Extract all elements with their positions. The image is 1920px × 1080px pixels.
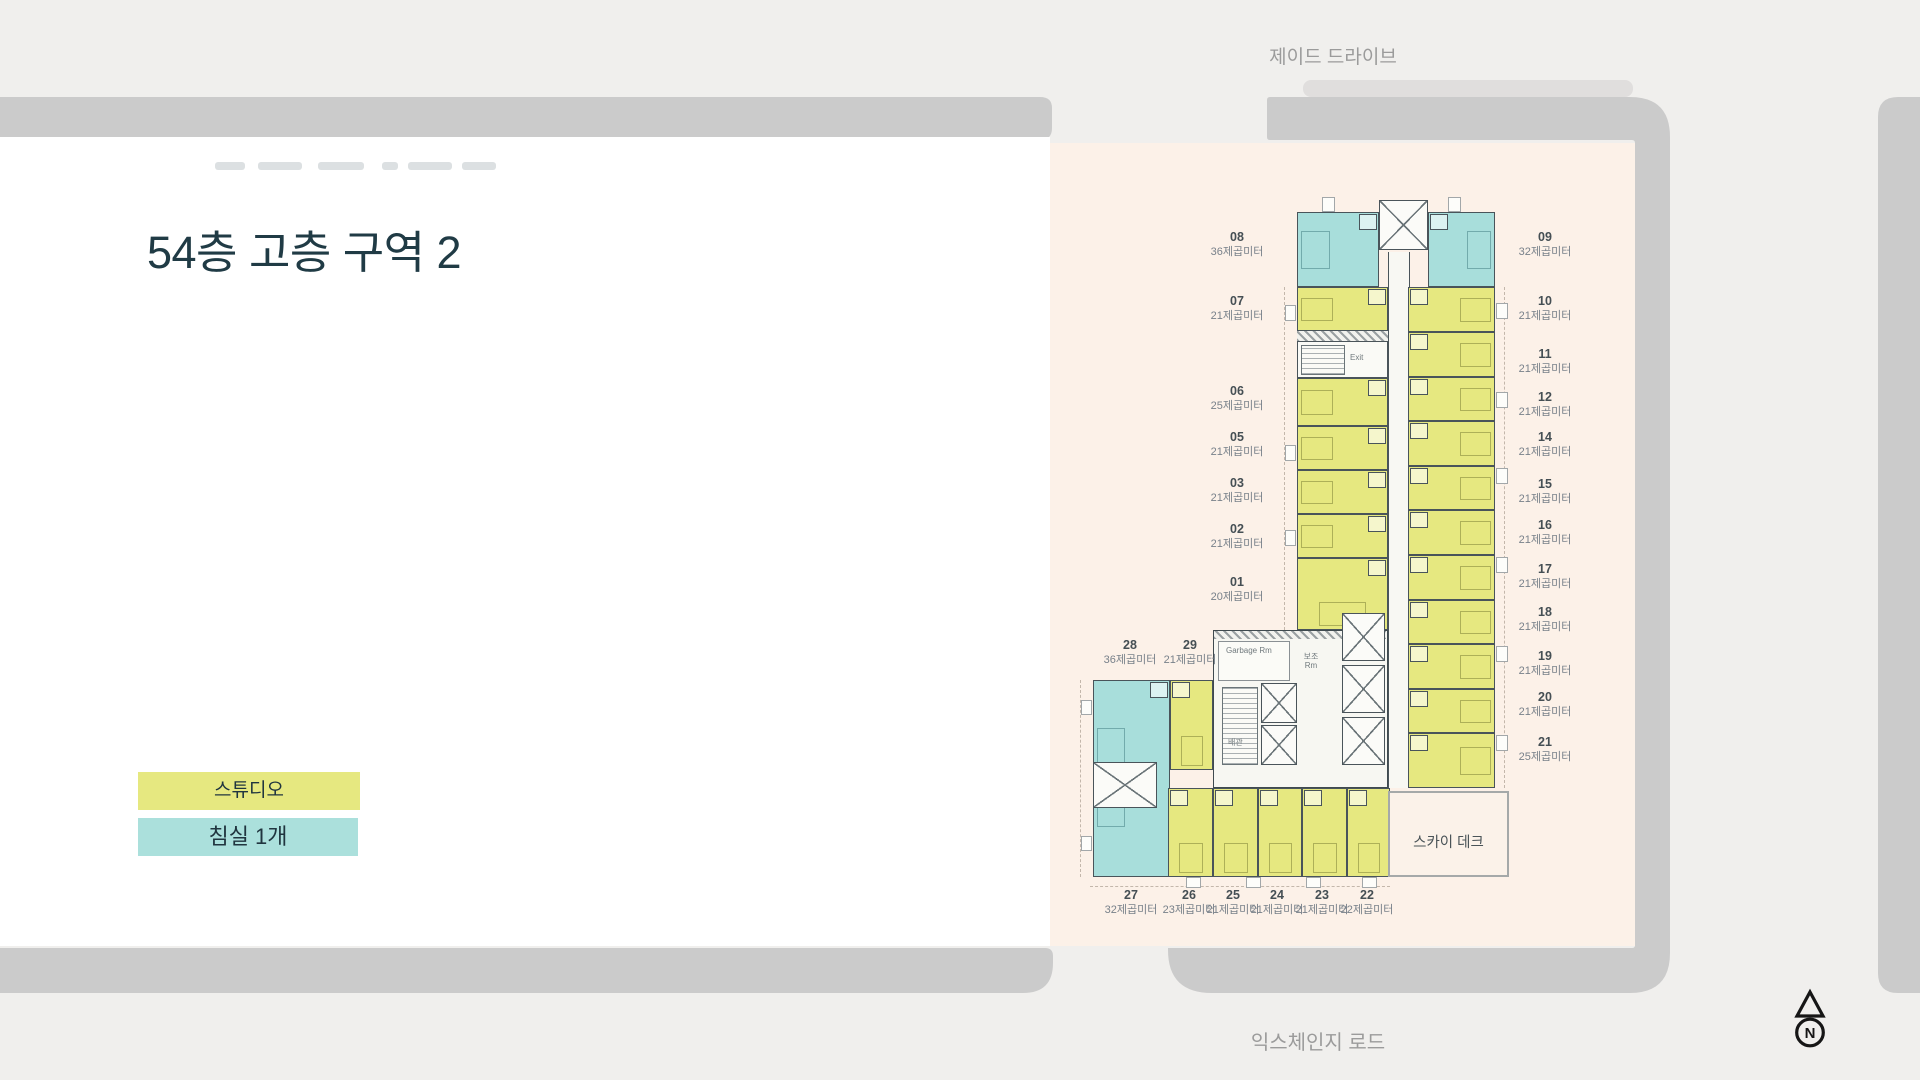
unit-25-cell bbox=[1213, 788, 1258, 877]
unit-17-cell bbox=[1408, 555, 1495, 600]
unit-label-10: 1021제곱미터 bbox=[1500, 294, 1590, 323]
balcony-tab bbox=[1285, 445, 1296, 461]
unit-label-07: 0721제곱미터 bbox=[1192, 294, 1282, 323]
unit-label-21: 2125제곱미터 bbox=[1500, 735, 1590, 764]
svg-text:N: N bbox=[1805, 1025, 1816, 1042]
elevator-shaft bbox=[1093, 762, 1157, 808]
unit-26-cell bbox=[1168, 788, 1213, 877]
unit-label-12: 1221제곱미터 bbox=[1500, 390, 1590, 419]
unit-10-cell bbox=[1408, 287, 1495, 332]
floor-plan: Exit Garbage Rm 보조 Rm 배관 bbox=[0, 0, 1920, 1080]
elevator-shaft bbox=[1379, 200, 1428, 250]
balcony-tab bbox=[1081, 700, 1092, 715]
elevator-shaft bbox=[1342, 613, 1385, 661]
unit-14-cell bbox=[1408, 421, 1495, 466]
unit-label-09: 0932제곱미터 bbox=[1500, 230, 1590, 259]
unit-05-cell bbox=[1297, 426, 1388, 470]
unit-label-05: 0521제곱미터 bbox=[1192, 430, 1282, 459]
unit-label-08: 0836제곱미터 bbox=[1192, 230, 1282, 259]
sky-deck-label: 스카이 데크 bbox=[1390, 831, 1507, 852]
unit-label-18: 1821제곱미터 bbox=[1500, 605, 1590, 634]
core-stairs bbox=[1222, 687, 1258, 765]
elevator-shaft bbox=[1342, 665, 1385, 713]
elevator-shaft bbox=[1342, 717, 1385, 765]
unit-12-cell bbox=[1408, 377, 1495, 421]
slide: 54층 고층 구역 2 스튜디오 침실 1개 제이드 드라이브 익스체인지 로드… bbox=[0, 0, 1920, 1080]
stairwell: Exit bbox=[1297, 341, 1388, 378]
unit-18-cell bbox=[1408, 600, 1495, 644]
unit-label-15: 1521제곱미터 bbox=[1500, 477, 1590, 506]
stairs bbox=[1301, 345, 1345, 375]
unit-label-01: 0120제곱미터 bbox=[1192, 575, 1282, 604]
unit-23-cell bbox=[1302, 788, 1347, 877]
balcony-tab bbox=[1186, 877, 1201, 888]
pipe-room-label: 배관 bbox=[1228, 739, 1243, 748]
unit-29-cell bbox=[1170, 680, 1213, 770]
exit-label: Exit bbox=[1350, 354, 1363, 363]
unit-08-cell bbox=[1297, 212, 1379, 287]
elevator-shaft bbox=[1261, 683, 1297, 723]
unit-label-22: 2222제곱미터 bbox=[1332, 888, 1402, 917]
unit-19-cell bbox=[1408, 644, 1495, 689]
sky-deck: 스카이 데크 bbox=[1388, 791, 1509, 877]
unit-label-03: 0321제곱미터 bbox=[1192, 476, 1282, 505]
unit-03-cell bbox=[1297, 470, 1388, 514]
balcony-tab bbox=[1081, 836, 1092, 851]
balcony-tab bbox=[1285, 305, 1296, 321]
unit-label-29: 2921제곱미터 bbox=[1150, 638, 1230, 667]
elevator-shaft bbox=[1261, 725, 1297, 765]
north-compass-icon: N bbox=[1780, 985, 1840, 1060]
unit-label-19: 1921제곱미터 bbox=[1500, 649, 1590, 678]
dashed-line bbox=[1090, 886, 1390, 887]
unit-label-16: 1621제곱미터 bbox=[1500, 518, 1590, 547]
balcony-tab bbox=[1285, 530, 1296, 546]
unit-20-cell bbox=[1408, 689, 1495, 733]
aux-room-label: 보조 Rm bbox=[1296, 653, 1326, 671]
garbage-room-label: Garbage Rm bbox=[1226, 647, 1272, 656]
hatched-wall bbox=[1297, 331, 1388, 341]
balcony-tab bbox=[1306, 877, 1321, 888]
unit-label-02: 0221제곱미터 bbox=[1192, 522, 1282, 551]
balcony-tab bbox=[1448, 197, 1461, 212]
unit-06-cell bbox=[1297, 378, 1388, 426]
balcony-tab bbox=[1322, 197, 1335, 212]
unit-21-cell bbox=[1408, 733, 1495, 788]
unit-02-cell bbox=[1297, 514, 1388, 558]
balcony-tab bbox=[1362, 877, 1377, 888]
unit-16-cell bbox=[1408, 510, 1495, 555]
unit-label-06: 0625제곱미터 bbox=[1192, 384, 1282, 413]
balcony-tab bbox=[1246, 877, 1261, 888]
unit-label-14: 1421제곱미터 bbox=[1500, 430, 1590, 459]
unit-label-20: 2021제곱미터 bbox=[1500, 690, 1590, 719]
unit-11-cell bbox=[1408, 332, 1495, 377]
unit-07-cell bbox=[1297, 287, 1388, 331]
unit-24-cell bbox=[1258, 788, 1302, 877]
unit-09-cell bbox=[1428, 212, 1495, 287]
unit-15-cell bbox=[1408, 466, 1495, 510]
unit-22-cell bbox=[1347, 788, 1390, 877]
corridor bbox=[1388, 252, 1410, 788]
building-core: Garbage Rm 보조 Rm 배관 bbox=[1213, 630, 1388, 788]
unit-label-17: 1721제곱미터 bbox=[1500, 562, 1590, 591]
unit-label-11: 1121제곱미터 bbox=[1500, 347, 1590, 376]
